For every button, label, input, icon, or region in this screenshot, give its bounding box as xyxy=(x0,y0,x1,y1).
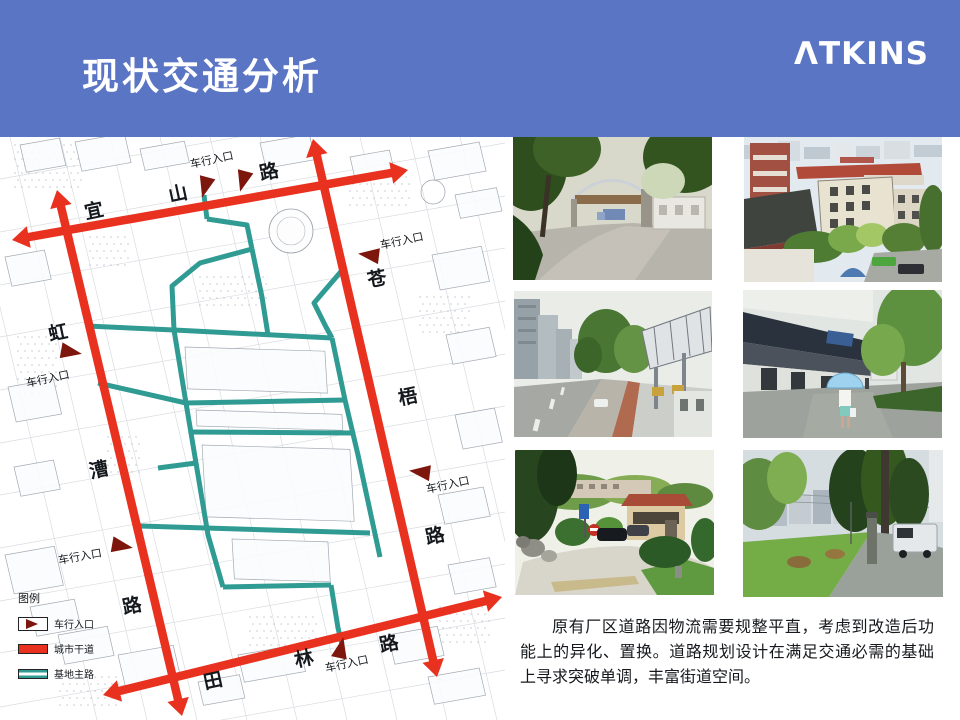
site-main-road xyxy=(172,249,252,330)
photo-umbrella-factory-walkway xyxy=(743,290,942,438)
legend-item-site-road: 基地主路 xyxy=(18,666,94,681)
legend-item-city-road: 城市干道 xyxy=(18,641,94,656)
city-road-legend-icon xyxy=(18,644,48,654)
entrance-legend-icon xyxy=(18,617,48,631)
entrance-label: 车行入口 xyxy=(57,546,103,567)
legend-title: 图例 xyxy=(18,590,94,606)
legend-item-entrance: 车行入口 xyxy=(18,616,94,631)
site-main-road xyxy=(332,338,380,557)
road-name-char: 漕 xyxy=(87,456,110,482)
entrance-label: 车行入口 xyxy=(379,229,425,252)
road-name-char: 林 xyxy=(292,645,315,671)
vehicle-entrance-marker xyxy=(60,342,83,361)
photo-guardhouse-driveway xyxy=(515,450,714,595)
road-name-char: 虹 xyxy=(46,319,69,345)
map-pond xyxy=(269,209,313,253)
vehicle-entrance-marker xyxy=(111,536,134,555)
photo-factory-entrance-road xyxy=(513,137,712,280)
entrance-label: 车行入口 xyxy=(189,148,235,171)
slide-canvas: 现状交通分析 ΛTKINS 车行入口车行入口车行入口车行入口车行入口车行入口宜山… xyxy=(0,0,960,720)
atkins-logo: ΛTKINS xyxy=(794,36,929,72)
site-main-road xyxy=(140,526,370,533)
site-road-legend-icon xyxy=(18,669,48,679)
entrance-triangle-icon xyxy=(26,619,38,629)
slide-header: 现状交通分析 ΛTKINS xyxy=(0,0,960,137)
map-legend: 图例 车行入口 城市干道 基地主路 xyxy=(18,590,94,681)
traffic-map: 车行入口车行入口车行入口车行入口车行入口车行入口宜山路苍梧路虹漕路田林路 图例 … xyxy=(0,137,505,720)
road-name-char: 路 xyxy=(423,522,447,549)
site-main-road xyxy=(191,432,352,433)
vehicle-entrance-marker xyxy=(232,169,253,193)
cangwu-road xyxy=(306,139,444,677)
page-title: 现状交通分析 xyxy=(82,56,322,98)
site-main-road xyxy=(87,326,174,330)
vehicle-entrance-marker xyxy=(357,246,380,264)
road-name-char: 山 xyxy=(166,181,189,206)
road-name-char: 梧 xyxy=(396,383,419,409)
photo-street-view-sidewalk xyxy=(514,291,712,437)
analysis-caption: 原有厂区道路因物流需要规整平直，考虑到改造后功能上的异化、置换。道路规划设计在满… xyxy=(520,614,934,689)
site-main-road xyxy=(186,400,345,403)
legend-item-label: 基地主路 xyxy=(54,666,94,681)
site-main-road xyxy=(174,330,332,338)
photo-residential-aerial-view xyxy=(744,137,942,282)
road-name-char: 宜 xyxy=(82,197,105,223)
site-main-road xyxy=(158,463,196,468)
road-name-char: 路 xyxy=(120,592,144,619)
map-round-feature xyxy=(421,180,445,204)
site-main-road xyxy=(223,585,331,587)
site-main-road xyxy=(314,268,344,338)
road-name-char: 田 xyxy=(201,668,224,693)
vehicle-entrance-marker xyxy=(408,463,431,481)
entrance-label: 车行入口 xyxy=(324,652,370,675)
legend-item-label: 城市干道 xyxy=(54,641,94,656)
photo-campus-lawn-road xyxy=(743,450,943,597)
legend-item-label: 车行入口 xyxy=(54,616,94,631)
